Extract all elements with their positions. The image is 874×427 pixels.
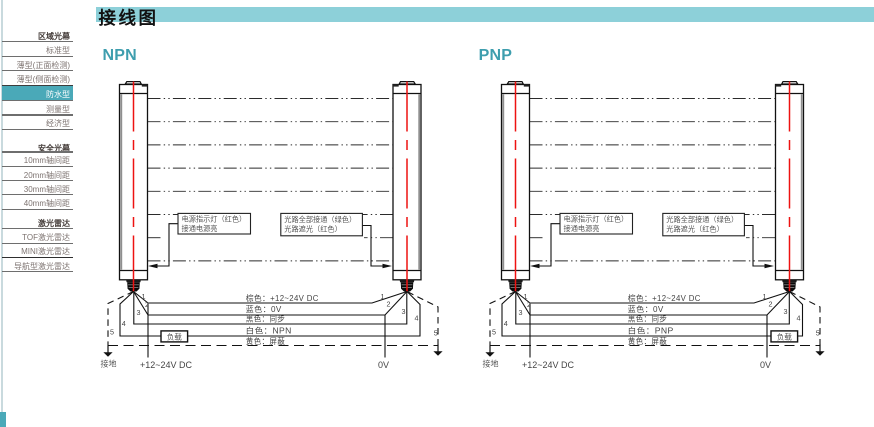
svg-text:0V: 0V — [378, 360, 389, 370]
svg-text:黄色：屏蔽: 黄色：屏蔽 — [246, 336, 286, 346]
svg-text:1: 1 — [381, 292, 385, 301]
svg-text:棕色：+12~24V DC: 棕色：+12~24V DC — [246, 293, 319, 303]
svg-text:0V: 0V — [760, 360, 771, 370]
svg-text:2: 2 — [527, 300, 531, 309]
svg-text:3: 3 — [137, 308, 141, 317]
svg-text:5: 5 — [110, 328, 114, 337]
svg-text:3: 3 — [784, 307, 788, 316]
svg-text:3: 3 — [519, 308, 523, 317]
svg-text:2: 2 — [145, 300, 149, 309]
svg-text:光路遮光（红色）: 光路遮光（红色） — [284, 225, 342, 234]
svg-text:4: 4 — [122, 319, 126, 328]
svg-text:接通电源亮: 接通电源亮 — [182, 224, 218, 233]
svg-text:光路全部接通（绿色）: 光路全部接通（绿色） — [666, 215, 738, 224]
svg-text:黑色：同步: 黑色：同步 — [246, 314, 286, 324]
svg-text:接地: 接地 — [101, 359, 117, 369]
svg-text:5: 5 — [492, 328, 496, 337]
svg-text:黄色：屏蔽: 黄色：屏蔽 — [628, 336, 668, 346]
svg-text:负载: 负载 — [167, 332, 183, 342]
svg-text:蓝色：0V: 蓝色：0V — [628, 304, 664, 314]
svg-text:黑色：同步: 黑色：同步 — [628, 314, 668, 324]
svg-text:接地: 接地 — [483, 359, 499, 369]
svg-text:3: 3 — [402, 307, 406, 316]
svg-text:5: 5 — [816, 329, 820, 338]
svg-text:4: 4 — [415, 314, 419, 323]
svg-text:负载: 负载 — [777, 332, 793, 342]
svg-text:接通电源亮: 接通电源亮 — [564, 224, 600, 233]
svg-text:电源指示灯（红色）: 电源指示灯（红色） — [564, 214, 629, 223]
svg-text:蓝色：0V: 蓝色：0V — [246, 304, 282, 314]
svg-text:白色：PNP: 白色：PNP — [628, 326, 674, 336]
svg-text:1: 1 — [763, 292, 767, 301]
svg-text:5: 5 — [434, 329, 438, 338]
svg-text:光路全部接通（绿色）: 光路全部接通（绿色） — [284, 215, 356, 224]
svg-text:棕色：+12~24V DC: 棕色：+12~24V DC — [628, 293, 701, 303]
svg-text:4: 4 — [504, 319, 508, 328]
svg-text:光路遮光（红色）: 光路遮光（红色） — [666, 225, 724, 234]
svg-text:白色：NPN: 白色：NPN — [246, 326, 292, 336]
svg-text:2: 2 — [387, 300, 391, 309]
svg-text:+12~24V DC: +12~24V DC — [140, 360, 193, 370]
svg-text:电源指示灯（红色）: 电源指示灯（红色） — [182, 214, 247, 223]
svg-text:4: 4 — [797, 314, 801, 323]
svg-text:+12~24V DC: +12~24V DC — [522, 360, 575, 370]
svg-text:2: 2 — [769, 300, 773, 309]
